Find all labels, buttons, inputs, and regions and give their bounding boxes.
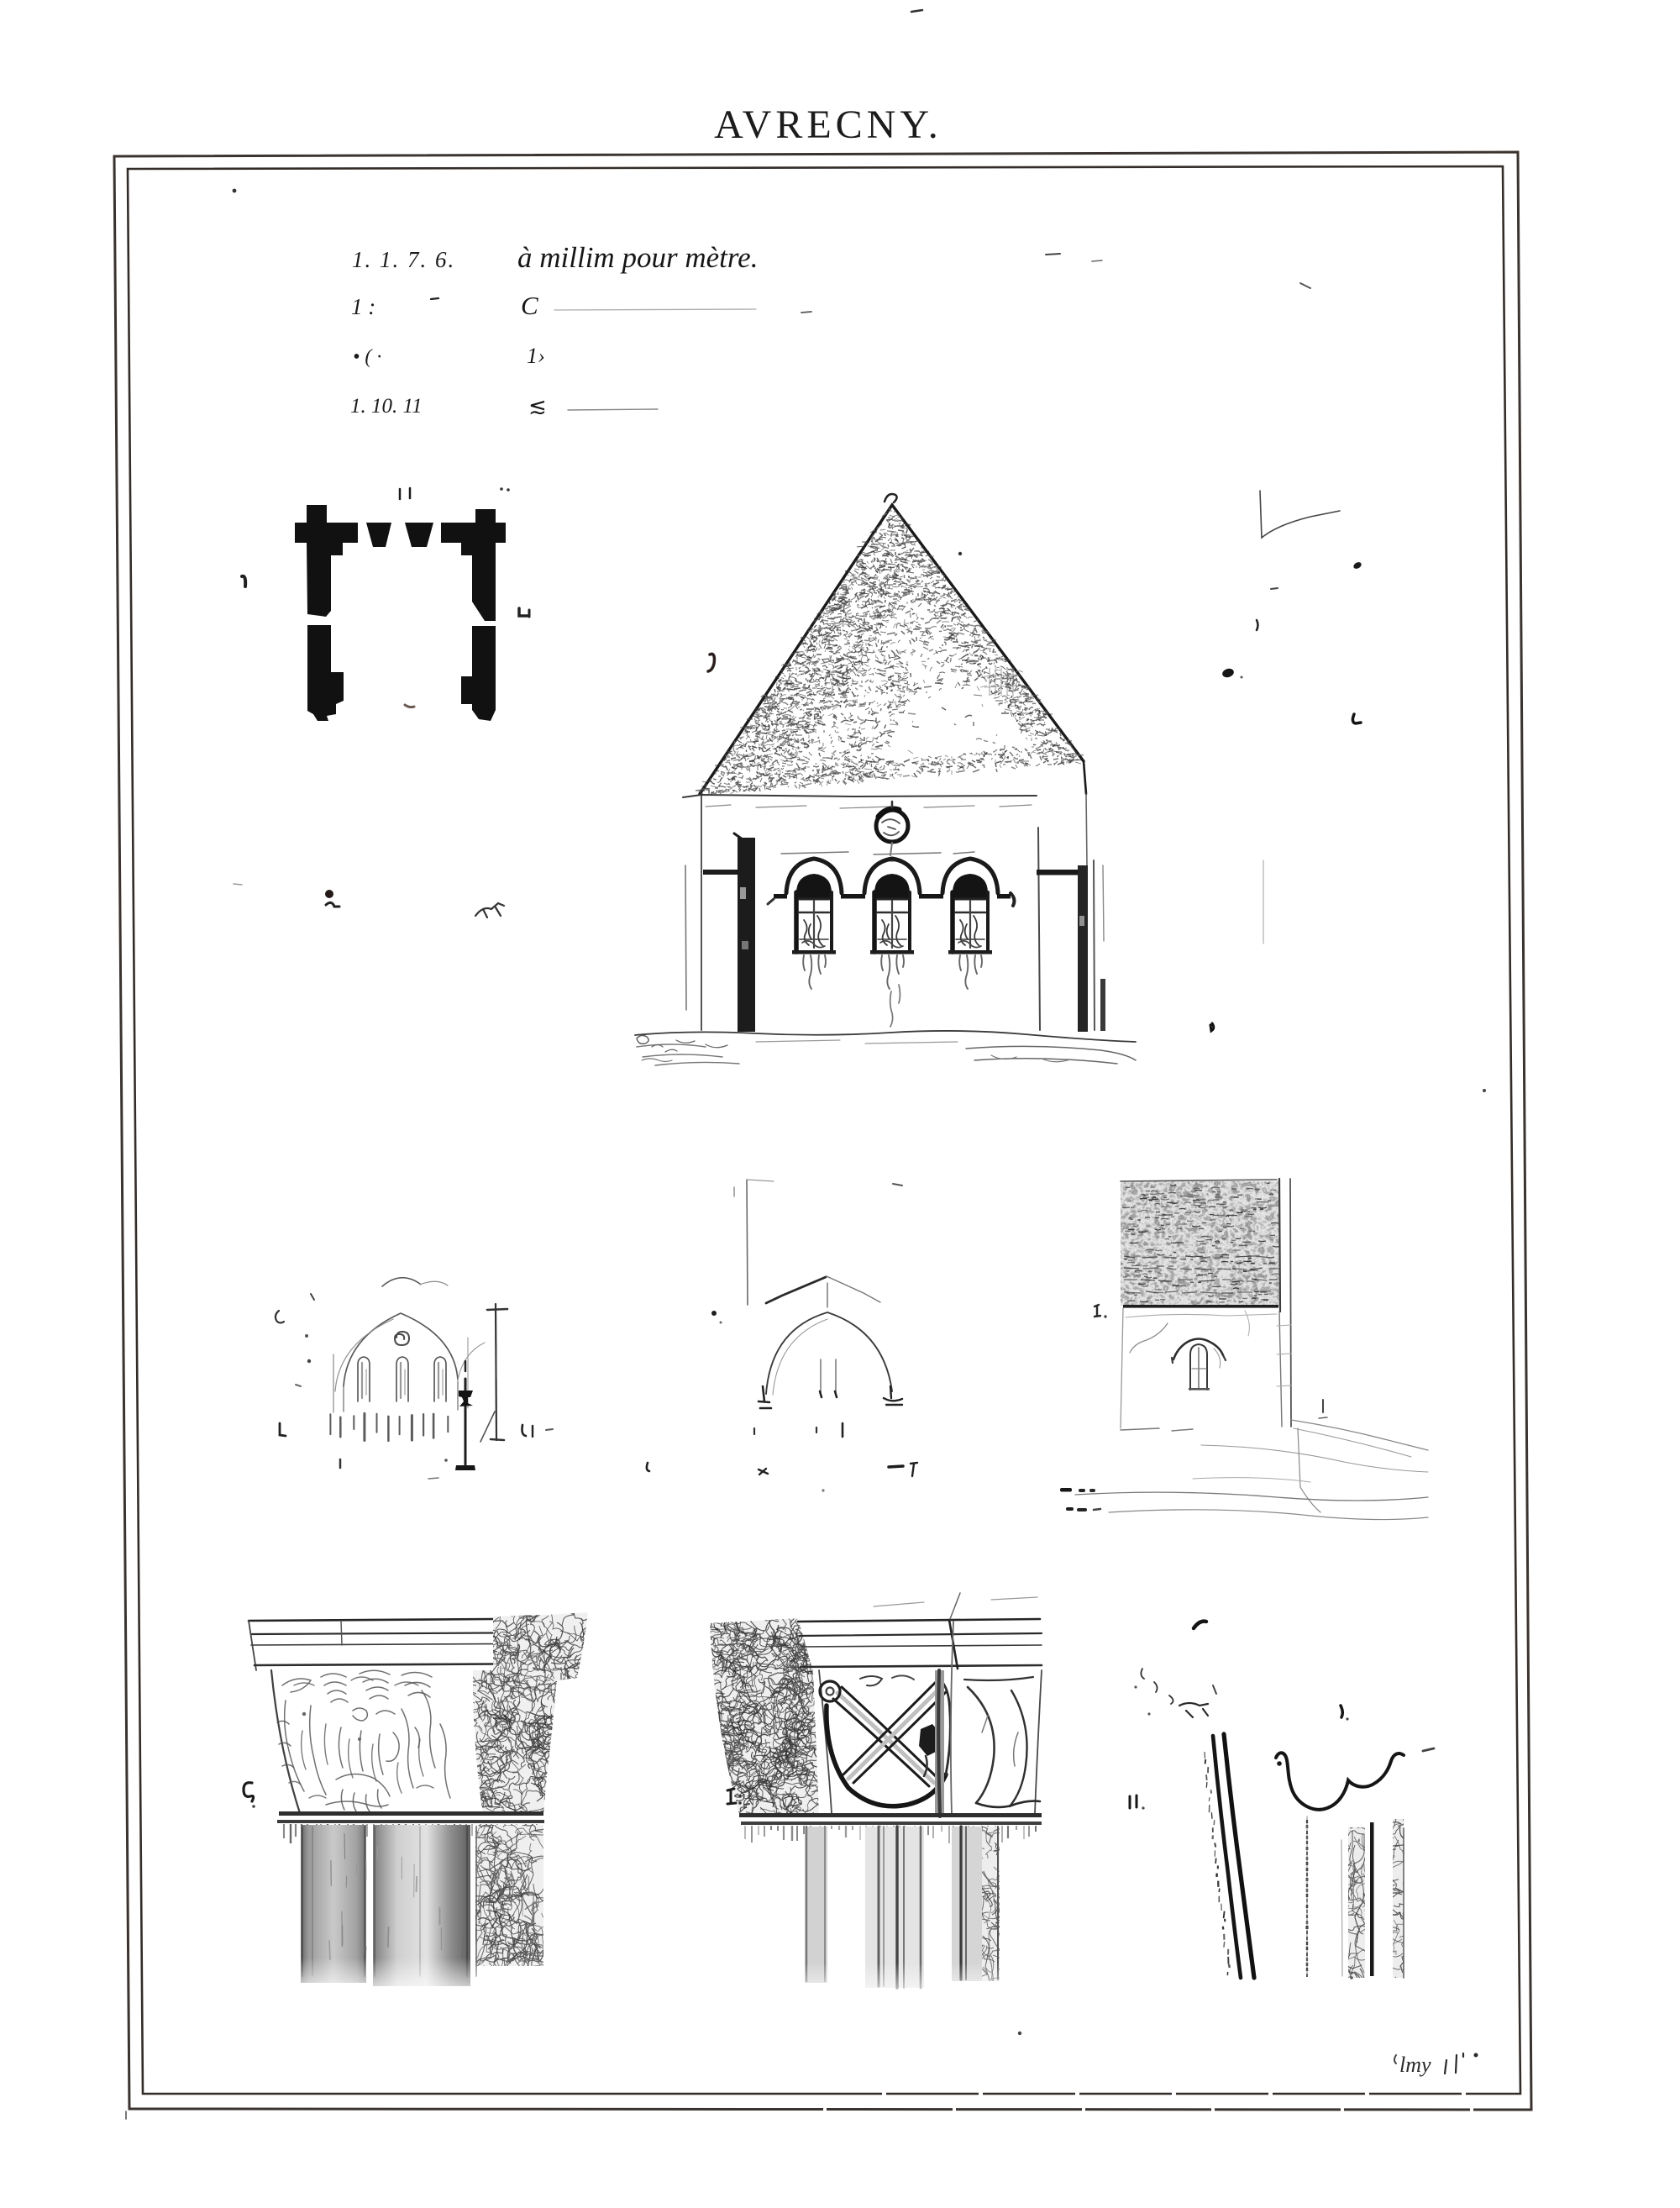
svg-text:à millim pour mètre.: à millim pour mètre. (517, 241, 758, 274)
svg-text:1›: 1› (527, 344, 545, 368)
svg-text:C: C (521, 291, 538, 320)
svg-text:1. 10. 11: 1. 10. 11 (350, 395, 423, 418)
svg-text:• ( ·: • ( · (353, 346, 381, 368)
svg-text:lmy: lmy (1399, 2053, 1431, 2077)
svg-text:≲: ≲ (528, 394, 547, 418)
svg-text:1 :: 1 : (351, 294, 375, 319)
svg-text:1. 1. 7. 6.: 1. 1. 7. 6. (352, 247, 455, 272)
svg-text:AVRECNY.: AVRECNY. (714, 103, 942, 147)
